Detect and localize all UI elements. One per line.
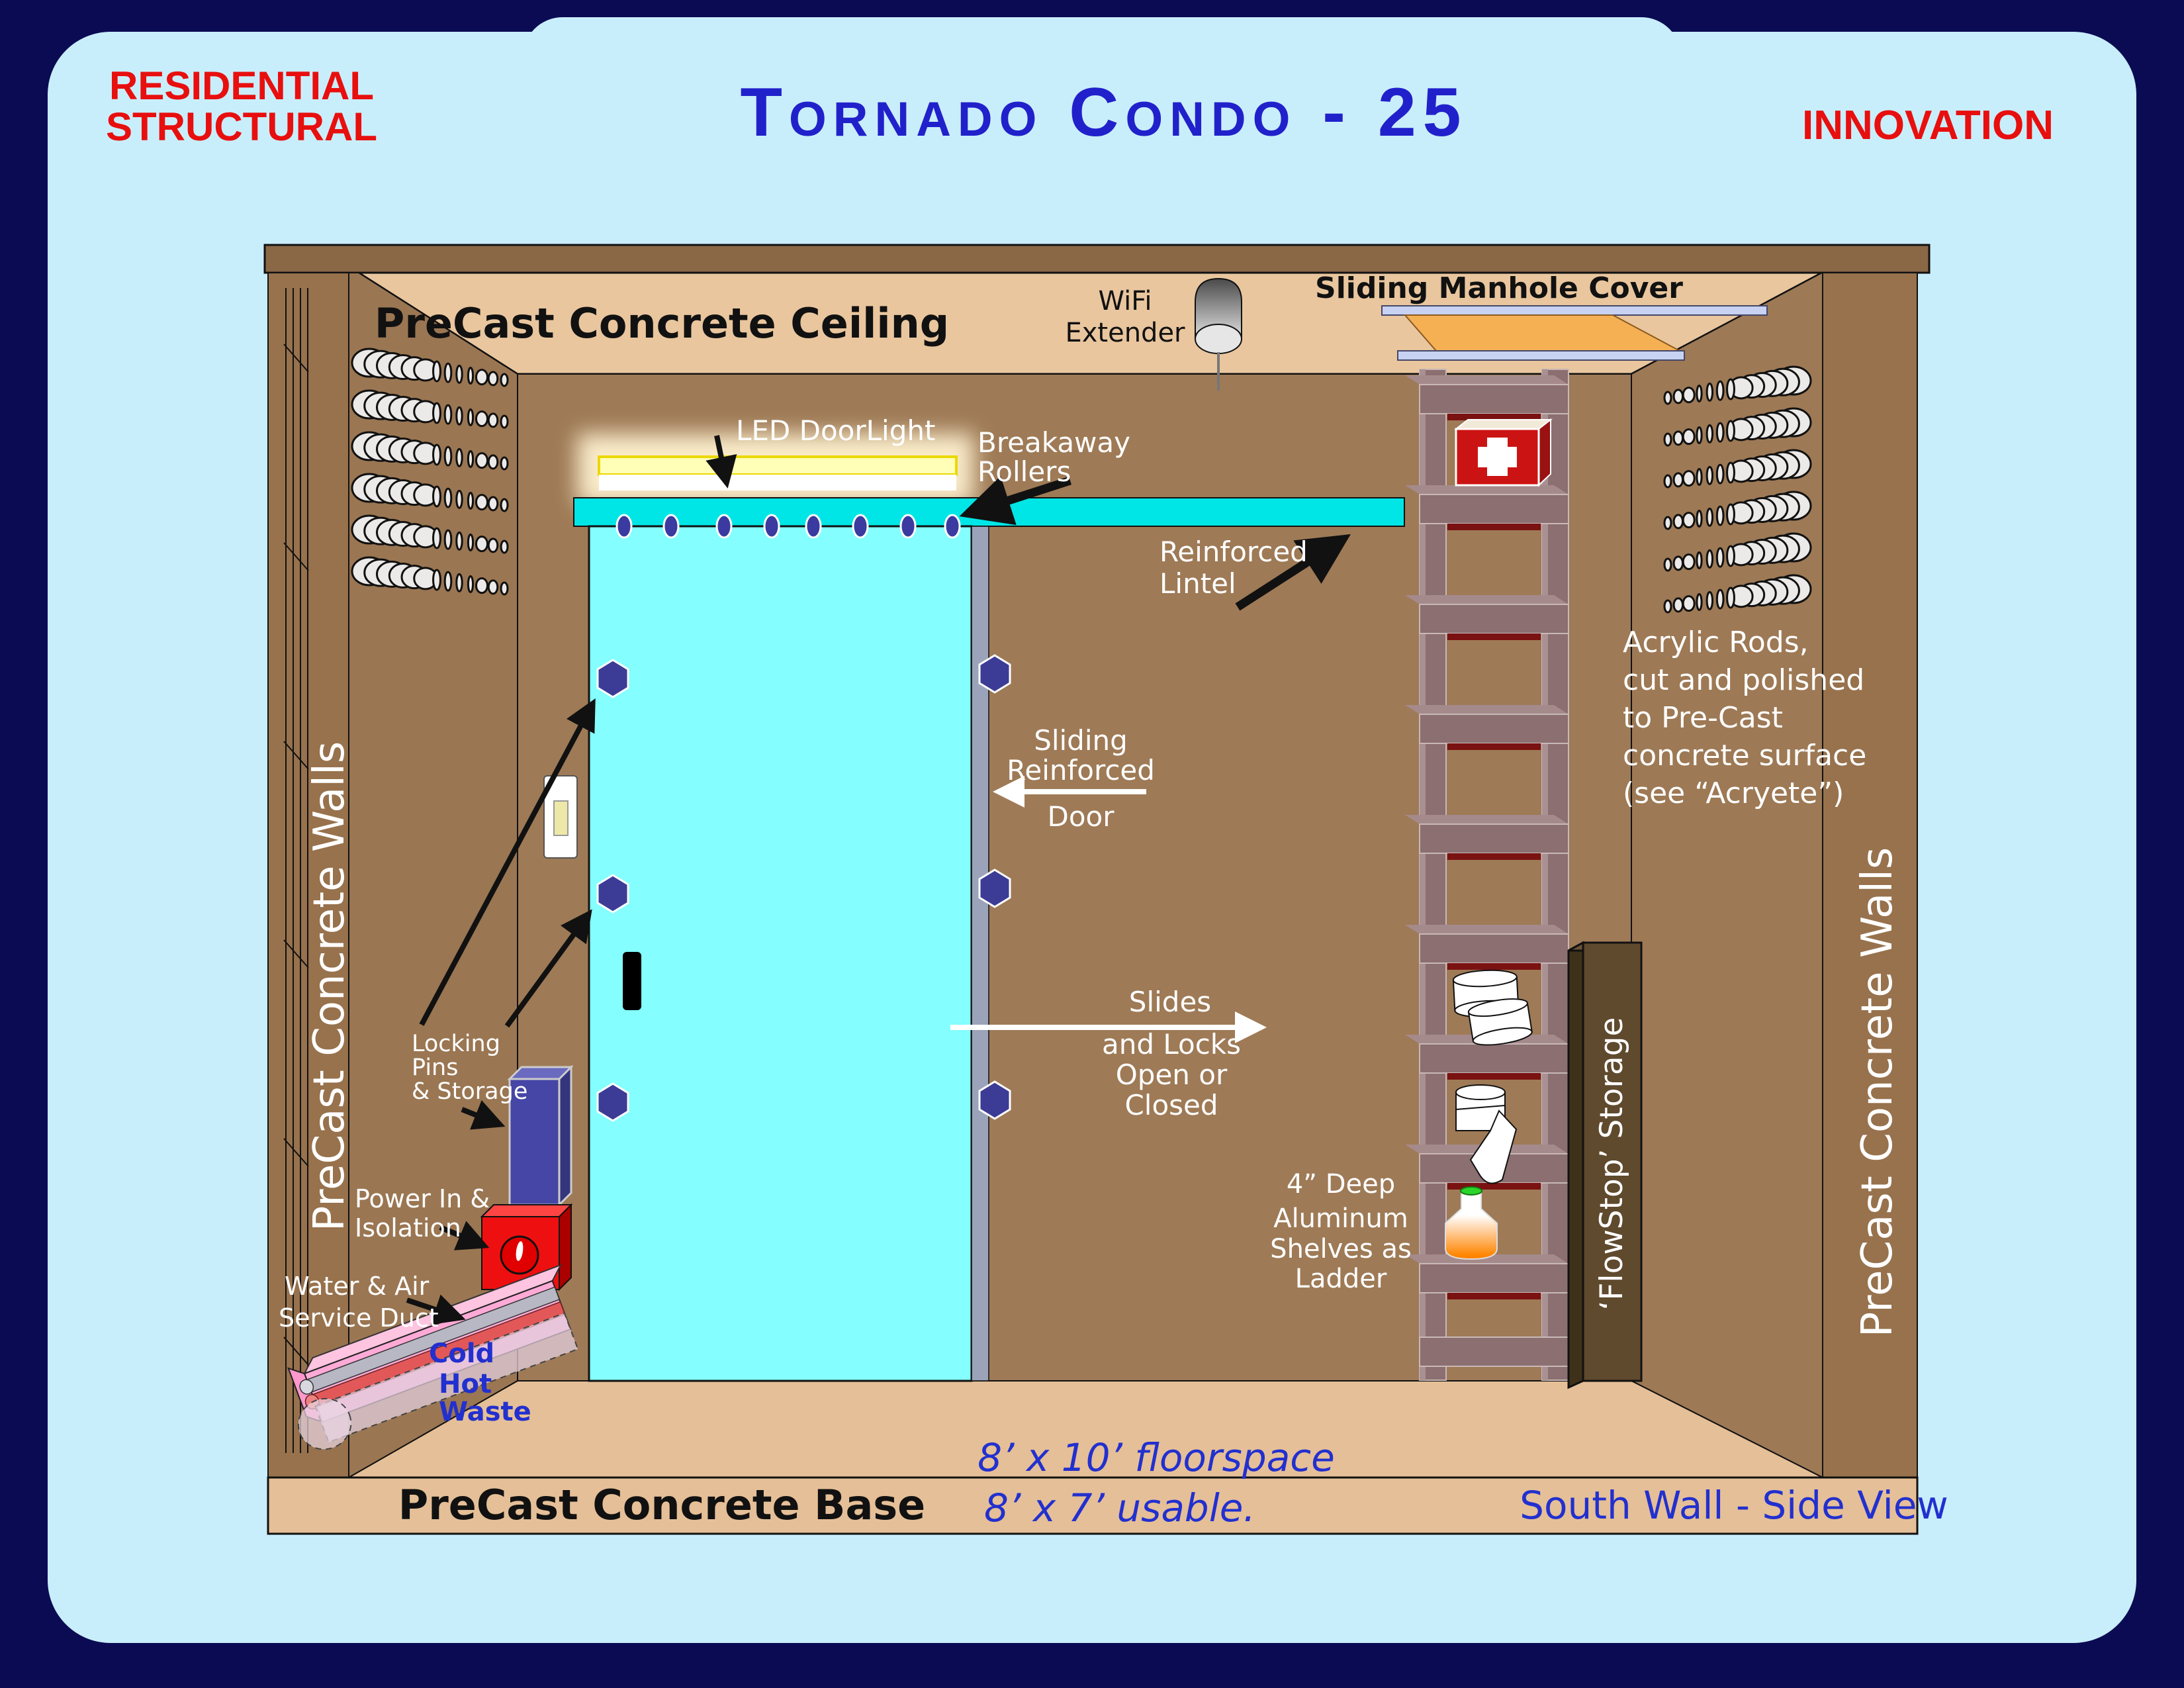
acrylic-rod-hole — [1697, 553, 1702, 569]
ladder-rung-top — [1405, 595, 1569, 604]
top-bar — [265, 245, 1929, 273]
acrylic-rod-hole — [488, 497, 498, 510]
breakaway-roller — [717, 515, 731, 538]
acrylic-rod-hole — [1717, 465, 1723, 483]
acrylic-rod-hole — [445, 447, 451, 465]
slides-label-4: Closed — [1124, 1089, 1218, 1121]
acrylic-rod-hole — [445, 530, 451, 549]
acrylic-rod-hole — [1683, 471, 1694, 486]
ladder-rung-shadow — [1447, 853, 1541, 860]
ladder-rung-top — [1405, 815, 1569, 824]
tornado-condo-diagram: RESIDENTIAL STRUCTURAL Tornado Condo - 2… — [0, 0, 2184, 1688]
ladder-rung-top — [1405, 375, 1569, 385]
power-isolation-box — [482, 1205, 571, 1289]
locking-pin-hexagon — [979, 1082, 1010, 1119]
acrylic-rod-hole — [1664, 434, 1671, 445]
acrylic-rod-hole — [501, 416, 508, 428]
acrylic-rod-hole — [468, 493, 473, 509]
ladder-rung-shadow — [1447, 633, 1541, 640]
acrylic-rod-hole — [1727, 504, 1735, 524]
acrylic-rod-hole — [433, 445, 441, 465]
acrylic-rod-hole — [445, 363, 451, 382]
shelves-label-3: Shelves as — [1270, 1234, 1412, 1264]
shelves-label-1: 4” Deep — [1287, 1169, 1395, 1199]
ladder-rung — [1420, 934, 1569, 963]
acrylic-rod-hole — [457, 449, 462, 466]
ladder-rung — [1420, 385, 1569, 414]
acrylic-rod-hole — [457, 365, 462, 383]
acrylic-rod-hole — [445, 489, 451, 507]
ladder-rung — [1420, 604, 1569, 633]
acrylic-rod-hole — [457, 407, 462, 424]
acrylic-rod-hole — [1664, 475, 1671, 487]
acrylic-rod-hole — [501, 541, 508, 553]
acrylic-rod-hole — [445, 405, 451, 424]
acrylic-rod-hole — [1674, 432, 1683, 445]
locking-label-1: Locking — [412, 1031, 500, 1057]
ladder-rung-bottom — [1420, 1337, 1569, 1366]
header-left-line1: RESIDENTIAL — [109, 64, 374, 108]
breakaway-roller — [806, 515, 821, 538]
pipe-label-waste: Waste — [439, 1397, 531, 1427]
acrylic-rod-hole — [433, 361, 441, 381]
acrylic-rod-hole — [1727, 463, 1735, 483]
acrylic-rod-hole — [501, 457, 508, 469]
door-jamb-strip — [972, 526, 989, 1381]
bottle-cap — [1461, 1187, 1482, 1195]
ladder-rung-shadow — [1447, 1293, 1541, 1299]
acrylic-rod-hole — [1664, 559, 1671, 571]
acrylic-rod-hole — [1717, 548, 1723, 567]
led-yellow-band — [599, 457, 956, 475]
ladder-rung — [1420, 714, 1569, 743]
shelves-label-4: Ladder — [1295, 1264, 1387, 1294]
ladder-rung — [1420, 1044, 1569, 1073]
flowstop-label: ‘FlowStop’ Storage — [1594, 1017, 1630, 1311]
water-label-1: Water & Air — [285, 1272, 430, 1301]
lintel-label-1: Reinforced — [1160, 536, 1308, 568]
acrylic-rod-hole — [457, 532, 462, 549]
acrylic-rod-hole — [488, 414, 498, 427]
acrylic-label-1: Acrylic Rods, — [1623, 626, 1809, 659]
sliding-door-label-3: Door — [1047, 800, 1115, 833]
acrylic-rod-hole — [468, 368, 473, 384]
acrylic-rod-hole — [1727, 421, 1735, 441]
acrylic-rod-hole — [433, 487, 441, 506]
acrylic-rod-hole — [1717, 381, 1723, 400]
acrylic-rod-hole — [1683, 555, 1694, 569]
acrylic-rod-hole — [433, 403, 441, 423]
slides-label-3: Open or — [1116, 1058, 1228, 1091]
door-handle — [623, 952, 641, 1010]
acrylic-rod-hole — [1707, 592, 1712, 609]
acrylic-rod-hole — [1697, 594, 1702, 610]
acrylic-rod-hole — [1697, 469, 1702, 485]
view-label: South Wall - Side View — [1520, 1483, 1948, 1528]
locking-pin-hexagon — [979, 870, 1010, 907]
acrylic-rod-hole — [433, 528, 441, 548]
acrylic-label-5: (see “Acryete”) — [1623, 776, 1844, 810]
sliding-door — [589, 526, 972, 1381]
ladder-rung-top — [1405, 925, 1569, 934]
breakaway-roller — [617, 515, 631, 538]
shelves-label-2: Aluminum — [1273, 1203, 1408, 1234]
ladder-rung — [1420, 824, 1569, 853]
acrylic-rod-hole — [488, 372, 498, 385]
slides-label-2: and Locks — [1102, 1028, 1241, 1060]
acrylic-rod-hole — [1727, 546, 1735, 566]
acrylic-rod-hole — [1683, 513, 1694, 528]
ladder-rung-top — [1405, 485, 1569, 494]
acrylic-rod-hole — [1697, 428, 1702, 444]
acrylic-rod-hole — [445, 572, 451, 590]
lintel-label-2: Lintel — [1160, 567, 1236, 600]
acrylic-rod-hole — [1664, 600, 1671, 612]
acrylic-rod-hole — [1707, 508, 1712, 526]
breakaway-roller — [764, 515, 779, 538]
sliding-door-label-1: Sliding — [1034, 724, 1128, 757]
acrylic-rod-hole — [477, 495, 488, 510]
door-track — [574, 498, 1404, 526]
led-label: LED DoorLight — [736, 414, 935, 447]
acrylic-rod-hole — [1707, 550, 1712, 567]
breakaway-label-2: Rollers — [978, 455, 1071, 488]
acrylic-rod-hole — [468, 410, 473, 426]
power-label-2: Isolation — [355, 1213, 461, 1243]
power-label-1: Power In & — [355, 1184, 490, 1213]
light-switch-toggle — [554, 801, 568, 835]
pipe-label-hot: Hot — [439, 1369, 492, 1399]
flowstop-storage-panel: ‘FlowStop’ Storage — [1569, 943, 1641, 1387]
acrylic-rod-hole — [1674, 598, 1683, 612]
acrylic-rod-hole — [501, 583, 508, 594]
acrylic-rod-hole — [468, 451, 473, 467]
acrylic-rod-hole — [1674, 473, 1683, 487]
manhole-rail-bottom — [1398, 351, 1684, 360]
floorspace-label: 8’ x 10’ floorspace — [978, 1435, 1335, 1480]
acrylic-rod-hole — [1674, 557, 1683, 570]
slides-label-1: Slides — [1129, 986, 1211, 1018]
acrylic-rod-hole — [488, 581, 498, 594]
page-title: Tornado Condo - 25 — [740, 74, 1467, 151]
sliding-door-label-2: Reinforced — [1007, 754, 1155, 786]
acrylic-rod-hole — [1683, 430, 1694, 444]
acrylic-rod-hole — [477, 579, 488, 593]
breakaway-roller — [853, 515, 868, 538]
first-aid-kit — [1456, 420, 1551, 485]
led-white-band — [599, 475, 956, 491]
acrylic-rod-hole — [1727, 379, 1735, 399]
base-label: PreCast Concrete Base — [398, 1481, 925, 1529]
acrylic-rod-hole — [1674, 515, 1683, 528]
acrylic-label-4: concrete surface — [1623, 739, 1866, 773]
acrylic-rod-hole — [1697, 511, 1702, 527]
acrylic-rod-hole — [1664, 392, 1671, 404]
acrylic-label-2: cut and polished — [1623, 663, 1864, 697]
acrylic-rod-hole — [1717, 506, 1723, 525]
acrylic-rod-hole — [1717, 590, 1723, 608]
acrylic-rod-hole — [1683, 388, 1694, 402]
locking-label-3: & Storage — [412, 1078, 527, 1105]
pipe-label-cold: Cold — [429, 1338, 494, 1369]
ceiling-label: PreCast Concrete Ceiling — [375, 299, 949, 348]
acrylic-rod-hole — [477, 370, 488, 385]
breakaway-roller — [664, 515, 678, 538]
acrylic-rod-hole — [1727, 588, 1735, 608]
acrylic-label-3: to Pre-Cast — [1623, 701, 1783, 735]
ladder-rung-shadow — [1447, 963, 1541, 970]
acrylic-rod-hole — [468, 535, 473, 551]
header-right: INNOVATION — [1802, 103, 2054, 148]
acrylic-rod-hole — [501, 499, 508, 511]
ladder-rung — [1420, 1264, 1569, 1293]
ladder-rung-shadow — [1447, 743, 1541, 750]
acrylic-rod-hole — [1697, 386, 1702, 402]
wifi-label-1: WiFi — [1099, 286, 1152, 316]
water-label-2: Service Duct — [279, 1303, 439, 1333]
acrylic-rod-hole — [477, 412, 488, 426]
acrylic-rod-hole — [1664, 517, 1671, 529]
locking-pin-hexagon — [598, 660, 628, 697]
acrylic-rod-hole — [488, 539, 498, 552]
manhole-rail-top — [1382, 306, 1767, 315]
acrylic-rod-hole — [433, 570, 441, 590]
acrylic-rod-hole — [1717, 423, 1723, 442]
breakaway-label-1: Breakaway — [978, 426, 1130, 459]
ladder-rung-shadow — [1447, 1073, 1541, 1080]
acrylic-rod-hole — [1683, 596, 1694, 611]
acrylic-rod-hole — [1707, 383, 1712, 400]
wifi-label-2: Extender — [1065, 318, 1185, 348]
acrylic-rod-hole — [477, 453, 488, 468]
ladder-rung-shadow — [1447, 524, 1541, 530]
acrylic-rod-hole — [457, 574, 462, 591]
locking-pin-hexagon — [598, 875, 628, 912]
acrylic-rod-hole — [468, 577, 473, 592]
acrylic-rod-hole — [1674, 390, 1683, 403]
usable-label: 8’ x 7’ usable. — [984, 1485, 1255, 1530]
acrylic-rod-hole — [501, 374, 508, 386]
breakaway-roller — [901, 515, 915, 538]
locking-label-2: Pins — [412, 1055, 458, 1081]
breakaway-roller — [945, 515, 960, 538]
acrylic-rod-hole — [1707, 467, 1712, 484]
acrylic-rod-hole — [457, 491, 462, 508]
ladder-rung — [1420, 494, 1569, 524]
acrylic-rod-hole — [1707, 425, 1712, 442]
locking-pin-hexagon — [979, 655, 1010, 692]
ladder-rung-top — [1405, 705, 1569, 714]
locking-pin-hexagon — [598, 1084, 628, 1121]
left-wall-label: PreCast Concrete Walls — [305, 741, 354, 1231]
header-left-line2: STRUCTURAL — [106, 105, 377, 149]
right-wall-label: PreCast Concrete Walls — [1853, 847, 1902, 1337]
acrylic-rod-hole — [477, 537, 488, 551]
acrylic-rod-hole — [488, 455, 498, 469]
manhole-label: Sliding Manhole Cover — [1315, 271, 1683, 305]
